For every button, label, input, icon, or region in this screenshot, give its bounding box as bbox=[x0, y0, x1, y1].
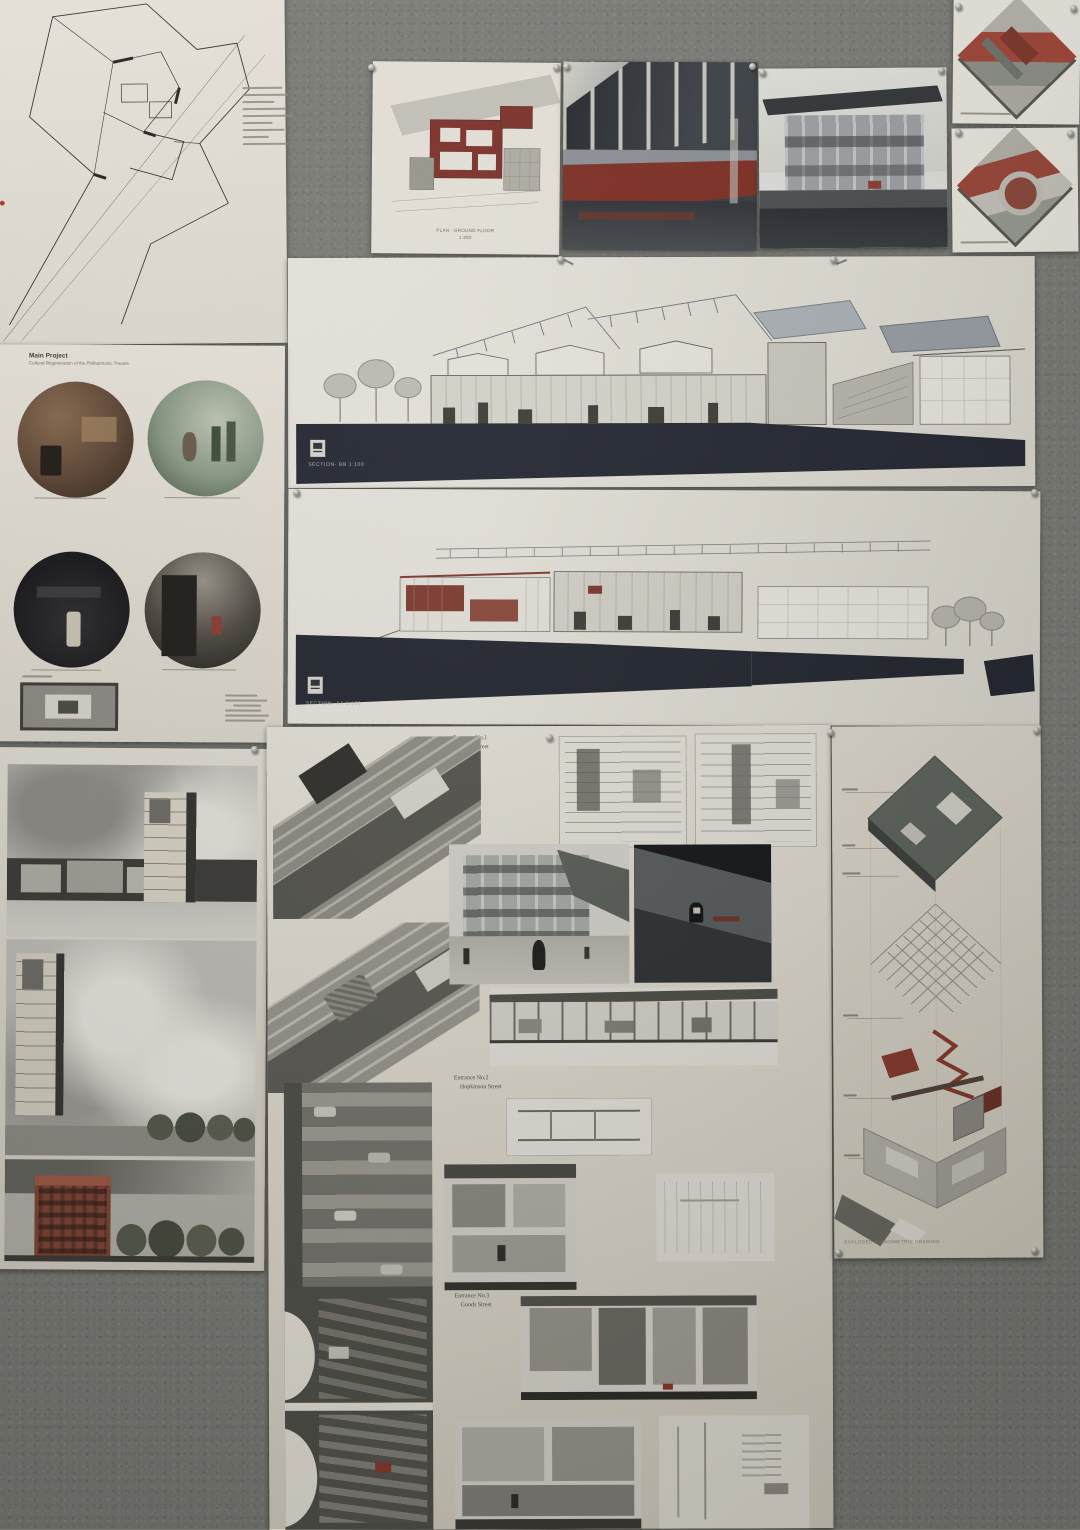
push-pin bbox=[759, 69, 766, 76]
montage-panel-2 bbox=[5, 939, 257, 1157]
photo-greenhouse bbox=[147, 380, 264, 497]
site-plan-thumbnail bbox=[20, 682, 118, 731]
section-aa-poster: SECTION- AA 1:100 bbox=[288, 489, 1041, 727]
interior-render-sheet bbox=[563, 61, 758, 250]
entrances-poster: Entrance No.1 Irving Street bbox=[267, 725, 834, 1530]
main-project-poster: Main Project Cultural Regeneration of th… bbox=[0, 344, 285, 743]
push-pin bbox=[830, 256, 837, 263]
exploded-axon-drawing bbox=[832, 725, 1044, 1258]
push-pin bbox=[368, 64, 375, 71]
photo-theatre-dark bbox=[13, 551, 130, 668]
ground-plan-sheet: PLAN : GROUND FLOOR 1:250 bbox=[371, 61, 561, 255]
push-pin bbox=[1031, 1247, 1038, 1254]
section-bb-drawing bbox=[288, 256, 1036, 488]
main-project-title: Main Project bbox=[29, 352, 68, 359]
site-plan-sheet bbox=[0, 0, 288, 345]
elevation-strip-2 bbox=[695, 733, 817, 847]
site-plan-drawing bbox=[0, 0, 288, 345]
entrance3-section-render-1 bbox=[521, 1295, 757, 1400]
pinup-wall-photo: { "scene_colors": { "wall": "#7b7c76", "… bbox=[0, 0, 1080, 1529]
dark-passage-photo bbox=[634, 844, 771, 982]
push-pin bbox=[251, 746, 258, 753]
push-pin bbox=[553, 64, 560, 71]
push-pin bbox=[1031, 489, 1038, 496]
axon-model-sheet-2 bbox=[951, 127, 1078, 252]
axon-model-render bbox=[957, 127, 1073, 243]
photo-interior-warm bbox=[17, 381, 134, 498]
main-project-subtitle: Cultural Regeneration of the Philharmoni… bbox=[29, 360, 129, 366]
montage-panel-1 bbox=[7, 764, 258, 938]
montage-panel-3 bbox=[4, 1159, 255, 1263]
section-aa-label: SECTION- AA 1:100 bbox=[306, 701, 362, 707]
push-pin bbox=[1070, 5, 1077, 12]
exterior-render bbox=[758, 67, 947, 248]
entrance3-label: Entrance No.3 Goods Street bbox=[455, 1292, 492, 1310]
section-bb-poster: SECTION- BB 1:100 bbox=[288, 256, 1036, 488]
push-pin bbox=[749, 63, 756, 70]
entrance2-label: Entrance No.2 Hopkinson Street bbox=[454, 1074, 502, 1092]
faint-sketches bbox=[659, 1415, 809, 1529]
axon-plan-cutaway-2 bbox=[267, 922, 480, 1093]
push-pin bbox=[557, 256, 564, 263]
interior-render bbox=[563, 61, 758, 250]
line-section-sketch bbox=[506, 1098, 652, 1157]
exterior-render-sheet bbox=[758, 67, 947, 248]
paving-plan-strips bbox=[284, 1082, 433, 1311]
push-pin bbox=[293, 489, 300, 496]
long-section-render bbox=[490, 987, 778, 1066]
push-pin bbox=[546, 734, 553, 741]
axon-poster-caption: EXPLODED AXONOMETRIC DRAWING bbox=[844, 1239, 940, 1245]
push-pin bbox=[827, 729, 834, 736]
axon-model-sheet-1 bbox=[952, 0, 1080, 125]
push-pin bbox=[1067, 130, 1074, 137]
project-info-block bbox=[0, 344, 285, 346]
faint-elevation-sketch bbox=[656, 1173, 774, 1261]
photo-alley-dark bbox=[144, 552, 261, 669]
elevation-strip-1 bbox=[559, 736, 687, 848]
push-pin bbox=[938, 67, 945, 74]
push-pin bbox=[563, 63, 570, 70]
axon-model-render bbox=[958, 0, 1077, 115]
section-bb-label: SECTION- BB 1:100 bbox=[308, 462, 364, 468]
dark-plan-crops bbox=[285, 1286, 434, 1530]
street-perspective-render bbox=[449, 844, 629, 985]
entrance3-section-render-2 bbox=[455, 1420, 641, 1530]
push-pin bbox=[835, 1249, 842, 1256]
push-pin bbox=[1033, 727, 1040, 734]
exploded-axon-poster: EXPLODED AXONOMETRIC DRAWING bbox=[832, 725, 1044, 1258]
ground-plan-drawing bbox=[371, 61, 561, 255]
section-aa-drawing bbox=[288, 489, 1041, 727]
push-pin bbox=[955, 129, 962, 136]
entrance2-section-render bbox=[444, 1164, 576, 1290]
push-pin bbox=[955, 3, 962, 10]
montage-poster bbox=[0, 747, 268, 1271]
